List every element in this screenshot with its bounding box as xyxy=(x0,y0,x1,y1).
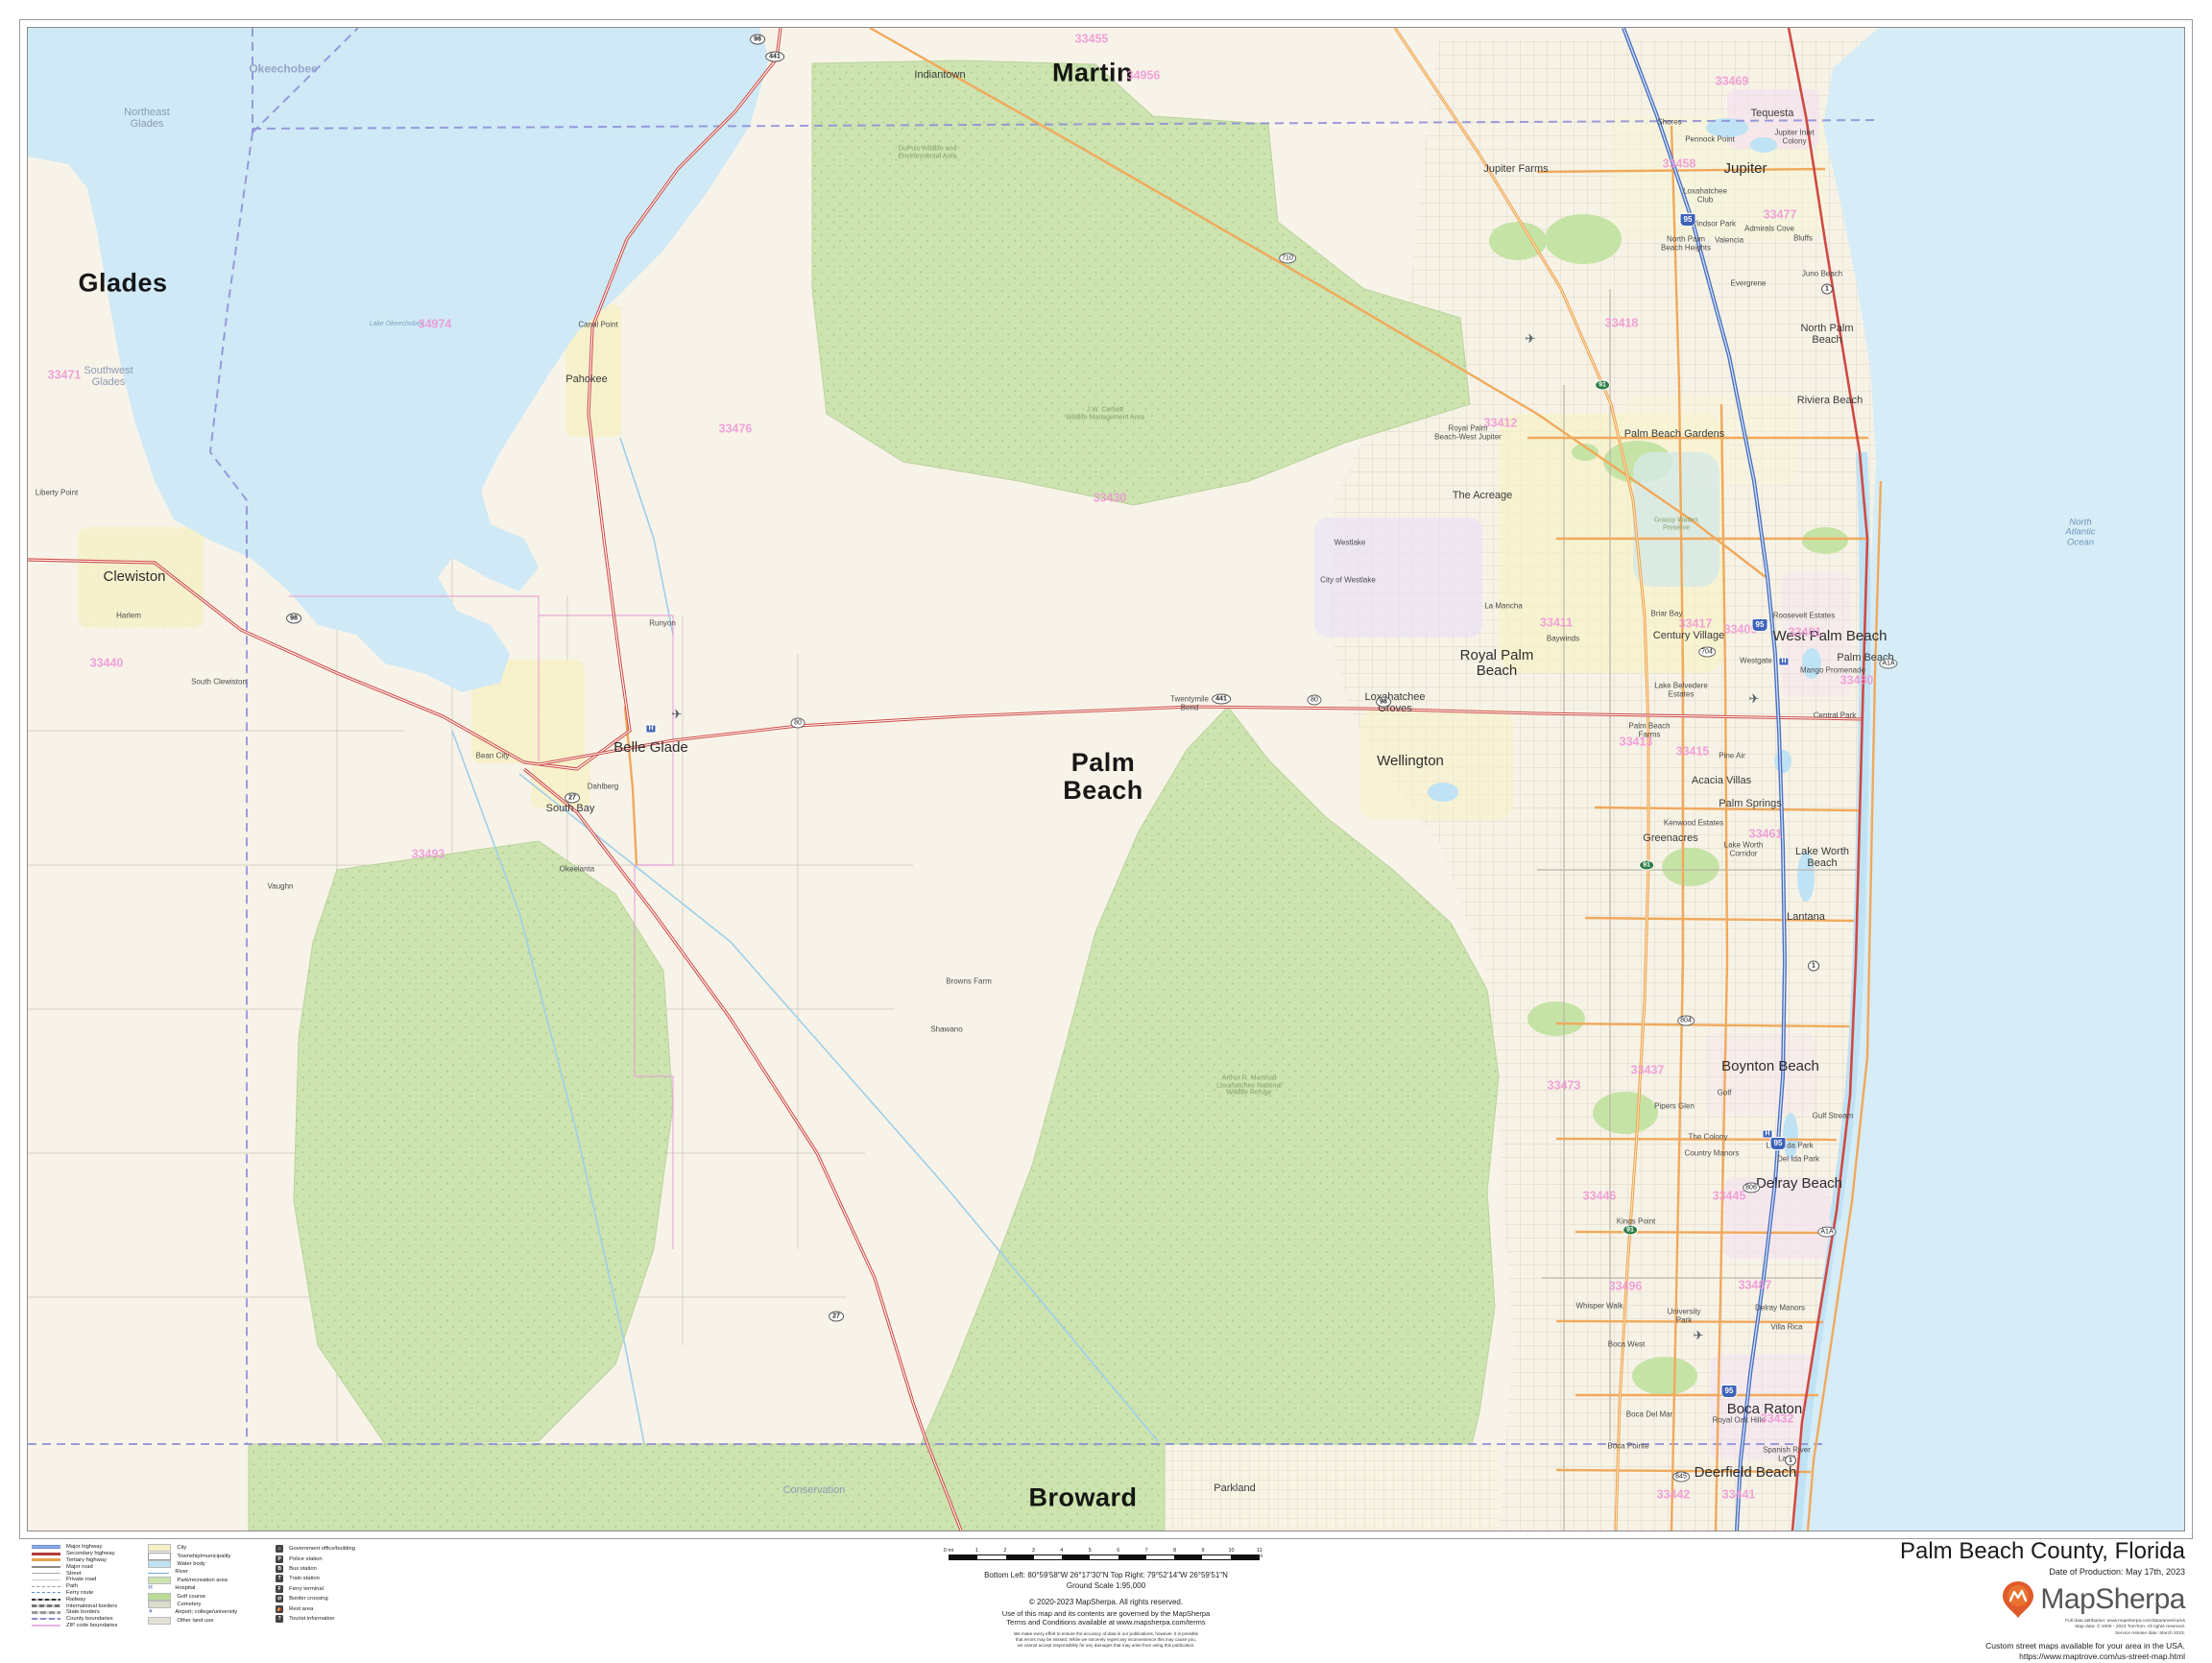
brand-name: MapSherpa xyxy=(2040,1583,2185,1616)
airport-icon-swatch: ✈ xyxy=(148,1609,169,1615)
legend-item: State borders xyxy=(32,1609,117,1616)
legend-item: ⌂Government office/building xyxy=(276,1544,355,1554)
scale-tick-label: 9 xyxy=(1202,1548,1205,1554)
legend-item: FFerry terminal xyxy=(276,1584,355,1594)
scale-bar-segments xyxy=(949,1555,1260,1560)
scale-tick-label: 10 xyxy=(1228,1548,1234,1554)
legend-item-label: Other land use xyxy=(177,1618,213,1624)
legend-item-label: Government office/building xyxy=(289,1546,355,1552)
street-swatch xyxy=(32,1573,60,1574)
legend-icon: T xyxy=(276,1575,283,1582)
legend-item-label: Park/recreation area xyxy=(177,1578,228,1583)
legend-item-label: Border crossing xyxy=(289,1596,328,1602)
legend-item-label: Street xyxy=(66,1571,81,1577)
scale-tick-label: 2 xyxy=(1003,1548,1006,1554)
legend-item: Ferry route xyxy=(32,1590,117,1597)
legend-item: Cemetery xyxy=(148,1601,237,1608)
legend-column-3: ⌂Government office/buildingPPolice stati… xyxy=(276,1544,355,1628)
legend-item: Street xyxy=(32,1570,117,1577)
scale-tick-label: 1 xyxy=(975,1548,978,1554)
maj-hwy-swatch xyxy=(32,1545,60,1549)
legend-item: City xyxy=(148,1544,237,1552)
legend-item-label: Ferry route xyxy=(66,1590,93,1596)
attribution-line-3: Service release date: March 2023. xyxy=(1900,1631,2185,1637)
map-canvas[interactable]: GladesMartinPalm BeachBrowardOkeechobeeW… xyxy=(27,27,2185,1531)
legend-item-label: International borders xyxy=(66,1603,117,1609)
legend-item-label: Airport; college/university xyxy=(175,1609,237,1615)
water-fill-swatch xyxy=(148,1560,171,1568)
scale-tick-label: 8 xyxy=(1173,1548,1176,1554)
scale-tick-label: 4 xyxy=(1060,1548,1063,1554)
priv-road-swatch xyxy=(32,1579,60,1580)
scale-segment xyxy=(1062,1555,1090,1559)
ter-hwy-swatch xyxy=(32,1558,60,1561)
legend-item: ⇄Border crossing xyxy=(276,1594,355,1603)
legend-item-label: Secondary highway xyxy=(66,1551,115,1556)
legend-icon: ⛺ xyxy=(276,1605,283,1613)
legend-icon: ⌂ xyxy=(276,1545,283,1553)
scale-segment xyxy=(1118,1555,1146,1559)
legend-item-label: State borders xyxy=(66,1609,100,1615)
legend-item-label: Hospital xyxy=(175,1585,195,1591)
other-fill-swatch xyxy=(148,1617,171,1625)
legend-item-label: Rest area xyxy=(289,1606,313,1612)
legend-item: BBus station xyxy=(276,1564,355,1574)
extent-coordinates: Bottom Left: 80°59'58"W 26°17'30"N Top R… xyxy=(626,1571,1586,1579)
legend-item-label: Township/municipality xyxy=(177,1554,230,1559)
legend-item-label: Water body xyxy=(177,1561,204,1567)
legend-icon: P xyxy=(276,1555,283,1563)
legend-column-1: Major highwaySecondary highwayTertiary h… xyxy=(32,1544,117,1628)
sec-hwy-swatch xyxy=(32,1553,60,1555)
legend-item: HHospital xyxy=(148,1584,237,1592)
legend-item-label: Private road xyxy=(66,1577,96,1582)
brand-logo: MapSherpa xyxy=(1900,1580,2185,1619)
park-fill-swatch xyxy=(148,1577,171,1584)
legend-item: International borders xyxy=(32,1603,117,1609)
legend-item: ?Tourist information xyxy=(276,1614,355,1624)
city-fill-swatch xyxy=(148,1544,171,1552)
legend-item-label: Tertiary highway xyxy=(66,1557,107,1563)
map-title: Palm Beach County, Florida xyxy=(1900,1538,2185,1565)
legend-icon: F xyxy=(276,1585,283,1593)
legend-item-label: Cemetery xyxy=(177,1602,201,1607)
legend-item-label: River xyxy=(175,1569,188,1575)
legend-item: PPolice station xyxy=(276,1554,355,1563)
legend-icon: ⇄ xyxy=(276,1595,283,1603)
scale-segment xyxy=(1202,1555,1230,1559)
legend-item-label: Major highway xyxy=(66,1544,102,1550)
terms-line-1: Use of this map and its contents are gov… xyxy=(626,1609,1586,1618)
legend-item: Other land use xyxy=(148,1617,237,1625)
disclaimer-line-2: that errors may be missed. While we sinc… xyxy=(626,1637,1586,1642)
scale-tick-label: 3 xyxy=(1032,1548,1035,1554)
map-artwork xyxy=(28,28,2184,1530)
ferry-swatch xyxy=(32,1592,60,1593)
legend-item: TTrain station xyxy=(276,1574,355,1583)
footer-right: Palm Beach County, Florida Date of Produ… xyxy=(1900,1538,2185,1663)
path-swatch xyxy=(32,1586,60,1587)
scale-segment xyxy=(1174,1555,1202,1559)
legend-item-label: ZIP code boundaries xyxy=(66,1623,117,1628)
cemetery-fill-swatch xyxy=(148,1601,171,1608)
production-date: Date of Production: May 17th, 2023 xyxy=(1900,1567,2185,1577)
mapsherpa-pin-icon xyxy=(2002,1580,2034,1619)
scale-tick-label: 0 mi xyxy=(944,1548,953,1554)
state-border-swatch xyxy=(32,1611,60,1614)
maj-road-swatch xyxy=(32,1566,60,1568)
zip-bound-swatch xyxy=(32,1625,60,1627)
scale-segment xyxy=(1231,1555,1259,1559)
scale-segment xyxy=(1034,1555,1062,1559)
legend-item-label: Train station xyxy=(289,1576,320,1581)
legend-item-label: City xyxy=(177,1545,186,1551)
scale-segment xyxy=(1006,1555,1034,1559)
scale-segment xyxy=(1090,1555,1118,1559)
copyright: © 2020-2023 MapSherpa. All rights reserv… xyxy=(626,1598,1586,1606)
disclaimer-line-1: We make every effort to ensure the accur… xyxy=(626,1631,1586,1636)
scale-bar: 0 mi1234567891011 mi xyxy=(949,1548,1260,1560)
disclaimer-line-3: we cannot accept responsibility for any … xyxy=(626,1643,1586,1648)
map-frame: GladesMartinPalm BeachBrowardOkeechobeeW… xyxy=(19,19,2193,1539)
legend-column-2: CityTownship/municipalityWater bodyRiver… xyxy=(148,1544,237,1628)
legend-item: River xyxy=(148,1568,237,1576)
legend-item-label: Golf course xyxy=(177,1594,205,1600)
intl-border-swatch xyxy=(32,1604,60,1607)
legend-item: County boundaries xyxy=(32,1616,117,1623)
legend-item: Major highway xyxy=(32,1544,117,1551)
township-fill-swatch xyxy=(148,1553,171,1560)
legend-item: Township/municipality xyxy=(148,1552,237,1559)
map-legend: Major highwaySecondary highwayTertiary h… xyxy=(32,1544,394,1628)
scale-segment xyxy=(950,1555,977,1559)
legend-item: Path xyxy=(32,1583,117,1590)
legend-item: ⛺Rest area xyxy=(276,1603,355,1613)
scale-tick-label: 5 xyxy=(1089,1548,1092,1554)
legend-item: Major road xyxy=(32,1563,117,1570)
legend-item: Water body xyxy=(148,1560,237,1568)
legend-item: ✈Airport; college/university xyxy=(148,1608,237,1616)
footer: Major highwaySecondary highwayTertiary h… xyxy=(0,1538,2212,1659)
legend-item: Park/recreation area xyxy=(148,1577,237,1584)
golf-fill-swatch xyxy=(148,1593,171,1601)
scale-tick-label: 11 mi xyxy=(1257,1548,1262,1559)
legend-item-label: Bus station xyxy=(289,1566,317,1572)
legend-item-label: Police station xyxy=(289,1556,322,1562)
legend-item-label: Ferry terminal xyxy=(289,1586,324,1592)
legend-item-label: County boundaries xyxy=(66,1616,113,1622)
terms-line-2: Terms and Conditions available at www.ma… xyxy=(626,1618,1586,1627)
legend-item: Tertiary highway xyxy=(32,1557,117,1564)
legend-item: ZIP code boundaries xyxy=(32,1623,117,1629)
railway-swatch xyxy=(32,1599,60,1601)
legend-item: Secondary highway xyxy=(32,1551,117,1557)
legend-item-label: Major road xyxy=(66,1564,93,1570)
legend-item-label: Path xyxy=(66,1583,78,1589)
scale-bar-labels: 0 mi1234567891011 mi xyxy=(949,1548,1260,1555)
ground-scale: Ground Scale 1:95,000 xyxy=(626,1581,1586,1590)
legend-icon: B xyxy=(276,1565,283,1573)
legend-item-label: Tourist information xyxy=(289,1616,334,1622)
scale-segment xyxy=(977,1555,1005,1559)
legend-item-label: Railway xyxy=(66,1597,85,1603)
legend-item: Private road xyxy=(32,1577,117,1583)
hospital-icon-swatch: H xyxy=(148,1585,169,1591)
scale-tick-label: 6 xyxy=(1117,1548,1119,1554)
legend-item: Golf course xyxy=(148,1592,237,1600)
county-bound-swatch xyxy=(32,1618,60,1620)
river-line-swatch xyxy=(148,1573,169,1574)
legend-item: Railway xyxy=(32,1596,117,1603)
custom-maps-url[interactable]: https://www.maptrove.com/us-street-map.h… xyxy=(1900,1651,2185,1662)
custom-maps-note: Custom street maps available for your ar… xyxy=(1900,1641,2185,1651)
legend-icon: ? xyxy=(276,1615,283,1623)
scale-segment xyxy=(1146,1555,1174,1559)
scale-tick-label: 7 xyxy=(1145,1548,1148,1554)
